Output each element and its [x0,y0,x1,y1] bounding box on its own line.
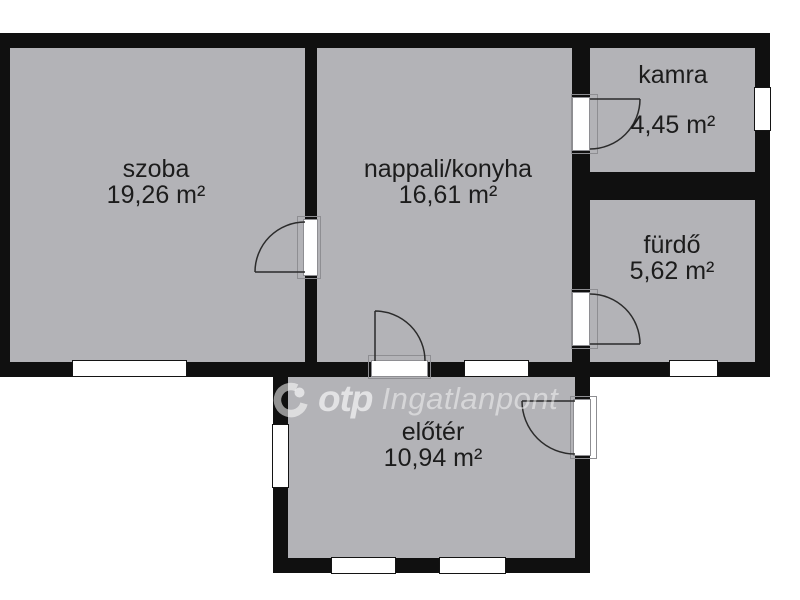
door-szoba-nappali [303,219,318,276]
window-nappali-south [464,360,529,377]
label-eloter: előtér 10,94 m² [384,419,483,471]
window-eloter-west [272,424,289,488]
room-area: 10,94 m² [384,445,483,471]
door-kamra [572,97,590,151]
wall-outer-right [755,33,770,377]
door-nappali-eloter [371,360,428,377]
label-furdo: fürdő 5,62 m² [630,232,715,284]
door-furdo [572,292,590,346]
room-name: szoba [107,156,206,182]
wall-outer-top [0,33,770,48]
wall-kamra-furdo [572,172,770,200]
window-kamra-east [754,87,771,131]
room-name: előtér [384,419,483,445]
window-eloter-south-1 [331,557,396,574]
room-area: 4,45 m² [631,112,716,138]
window-eloter-south-2 [439,557,506,574]
wall-eloter-bottom [273,558,590,573]
label-nappali-konyha: nappali/konyha 16,61 m² [364,156,532,208]
window-furdo-south [669,360,718,377]
room-name: kamra [631,62,716,88]
room-area: 5,62 m² [630,258,715,284]
room-name: nappali/konyha [364,156,532,182]
wall-szoba-nappali [305,48,317,362]
room-area: 16,61 m² [364,182,532,208]
label-kamra: kamra 4,45 m² [631,62,716,138]
wall-outer-left [0,33,10,377]
room-area: 19,26 m² [107,182,206,208]
label-szoba: szoba 19,26 m² [107,156,206,208]
floorplan: szoba 19,26 m² nappali/konyha 16,61 m² k… [0,0,800,600]
door-entrance [573,399,591,456]
room-name: fürdő [630,232,715,258]
window-szoba-south [72,360,187,377]
